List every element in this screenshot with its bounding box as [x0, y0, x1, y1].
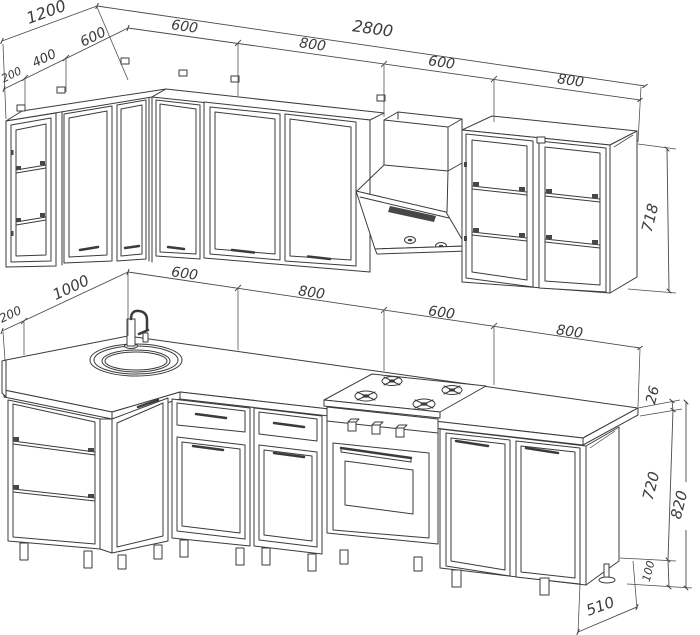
upper-cabinets — [6, 58, 637, 293]
leg — [540, 578, 549, 595]
leg — [262, 548, 270, 565]
dim-lower-back-seg-4: 800 — [555, 322, 584, 342]
leg — [20, 543, 28, 560]
dim-base-body-height: 720 — [639, 470, 663, 502]
drawer-unit-1 — [172, 399, 250, 565]
leg — [154, 545, 162, 559]
dim-upper-left-total: 1200 — [24, 0, 69, 28]
kitchen-technical-drawing: 1200 2800 600 400 200 600 800 600 800 71… — [0, 0, 700, 635]
leg — [236, 548, 244, 565]
dim-upper-left-seg-200: 200 — [0, 64, 24, 85]
corner-wall-cabinet — [117, 97, 200, 262]
leg — [180, 540, 188, 557]
drawer-unit-2 — [254, 408, 322, 571]
dim-upper-left-seg-600: 600 — [78, 24, 109, 50]
dim-plinth-height: 100 — [640, 559, 658, 583]
dim-upper-back-seg-3: 600 — [427, 53, 456, 73]
leg — [308, 554, 316, 571]
dim-upper-back-seg-4: 800 — [556, 71, 585, 91]
leg — [118, 555, 126, 569]
dim-upper-back-seg-2: 800 — [298, 35, 327, 55]
dim-upper-left-seg-400: 400 — [30, 47, 59, 71]
dim-lower-back-seg-1: 600 — [170, 264, 199, 284]
leg — [414, 557, 422, 571]
wall-cabinet-glass-narrow — [6, 113, 56, 267]
dim-lower-back-seg-3: 600 — [427, 303, 456, 323]
wall-cabinet-glass-800 — [462, 116, 637, 293]
leg — [84, 551, 92, 568]
dim-upper-cabinet-height: 718 — [638, 202, 662, 234]
wall-cabinet-800 — [204, 102, 370, 272]
range-hood — [356, 112, 468, 254]
corner-base-cabinet — [100, 398, 168, 569]
wall-cabinet-400 — [56, 106, 112, 266]
dim-base-depth: 510 — [584, 593, 617, 620]
dim-upper-back-total: 2800 — [351, 16, 394, 40]
base-cabinet-800 — [440, 427, 619, 595]
leg — [452, 570, 461, 587]
leg — [340, 550, 348, 564]
dim-upper-back-seg-1: 600 — [170, 17, 199, 37]
dim-lower-back-seg-2: 800 — [297, 283, 326, 303]
dim-countertop-thickness: 26 — [643, 384, 663, 405]
base-open-shelf-unit — [8, 400, 100, 568]
